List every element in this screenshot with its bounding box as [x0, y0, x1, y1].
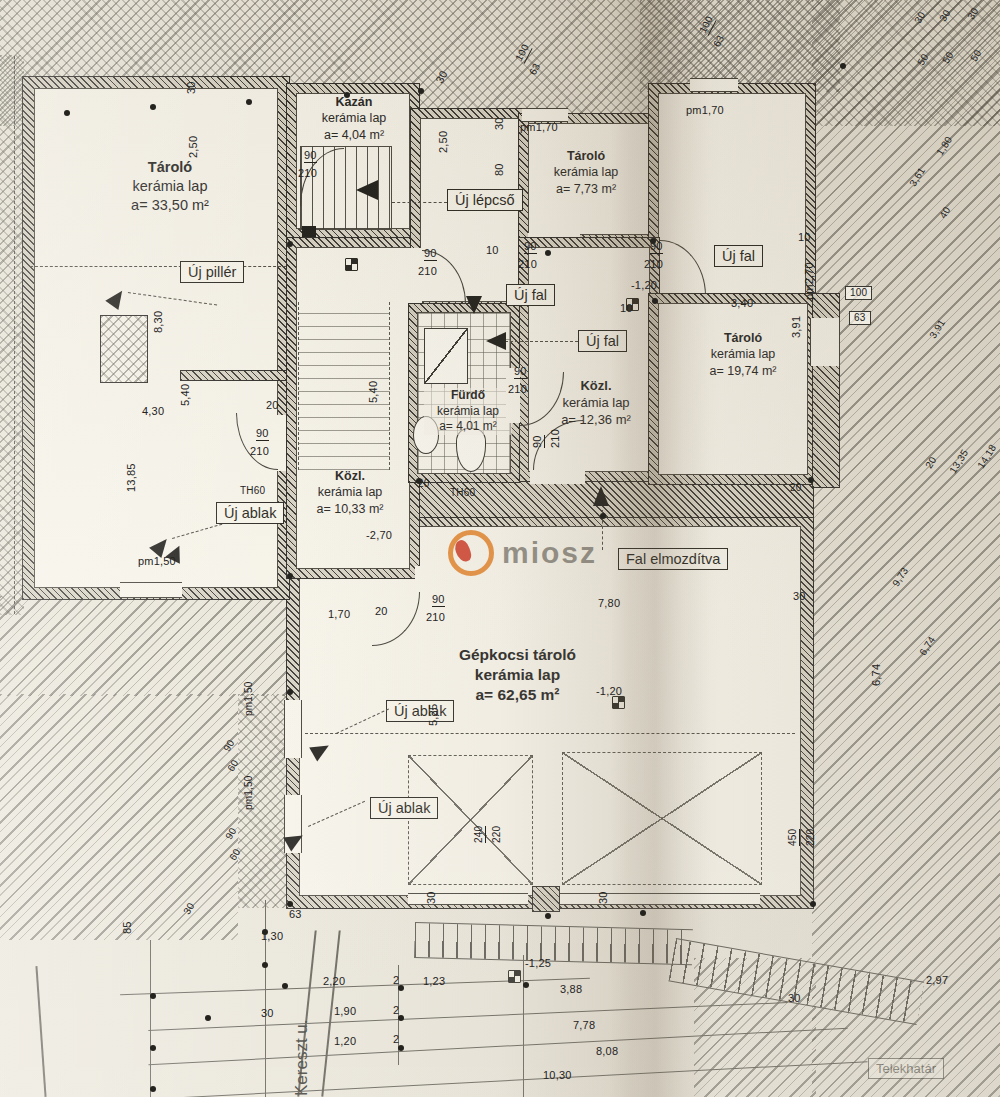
stair-direction-arrow [356, 180, 378, 200]
dimension-label: -1,20 [596, 686, 622, 697]
dimension-label: 30 [788, 993, 801, 1004]
survey-dot [418, 88, 424, 94]
dimension-label: -1,25 [525, 958, 551, 969]
dimension-label: 1,70 [328, 609, 350, 620]
dimension-label: 2,50 [188, 136, 199, 158]
tarolo-c-window [810, 318, 840, 366]
dimension-label: 8,08 [596, 1046, 618, 1057]
survey-dot [287, 689, 293, 695]
dimension-label: 20 [790, 483, 802, 493]
dimension-label: 3,40 [731, 298, 753, 309]
dimension-label: 90 [432, 594, 445, 607]
ground-hatch-left-strip [0, 55, 24, 615]
tarolo-a-pillar [100, 315, 148, 383]
watermark-logo-icon [448, 530, 494, 576]
dimension-label: 30 [426, 891, 437, 904]
dimension-label: 450 [788, 829, 800, 846]
callout-uj-piller: Új pillér [180, 261, 244, 283]
dimension-label: -2,70 [366, 530, 392, 541]
tarolo-a-window [120, 582, 182, 598]
ground-hatch-right-band [812, 0, 1000, 1097]
street-name-label: Kereszt u. [292, 1000, 312, 1096]
dimension-label: 30 [186, 81, 197, 94]
dimension-label: TH60 [450, 488, 475, 498]
survey-dot [205, 1015, 211, 1021]
dimension-label: 5,40 [368, 381, 379, 403]
survey-dot [808, 477, 814, 483]
survey-dot [150, 1045, 156, 1051]
survey-dot [545, 250, 551, 256]
survey-dot [640, 910, 646, 916]
leader-uj-lepcso [392, 202, 447, 203]
callout-uj-ablak-2: Új ablak [386, 700, 454, 722]
survey-dot [416, 478, 422, 484]
level-marker-4 [508, 970, 521, 983]
dimension-label: 210 [508, 384, 527, 395]
callout-uj-lepcso: Új lépcső [447, 189, 523, 211]
survey-dot [150, 1086, 156, 1092]
dimension-label: pm1,70 [520, 122, 558, 133]
callout-uj-ablak-1: Új ablak [216, 502, 284, 524]
dimension-label: 5,40 [180, 384, 191, 406]
dimension-label: 1,20 [334, 1036, 356, 1047]
dimension-label: 210 [418, 266, 437, 277]
garage-centerline [305, 733, 795, 734]
garage-door-opening-2 [560, 893, 760, 905]
dimension-label: 210 [298, 168, 317, 179]
survey-dot [262, 962, 268, 968]
room-label-tarolo-c: Tároló kerámia lap a= 19,74 m² [686, 330, 800, 379]
callout-uj-fal-2: Új fal [578, 330, 627, 352]
dimension-label: 220 [806, 829, 816, 846]
arrow-fal-elmozditva [593, 486, 609, 506]
survey-dot [840, 63, 846, 69]
tarolo-b-window [522, 108, 568, 122]
arrow-uj-fal-2 [486, 332, 506, 350]
survey-dot [150, 993, 156, 999]
dimension-label: 8,30 [153, 311, 164, 333]
dimension-label: 7,80 [598, 598, 620, 609]
dimension-label: 2,97 [926, 975, 948, 986]
callout-fal-elmozditva: Fal elmozdítva [618, 548, 728, 570]
dimension-label: 30 [261, 1008, 274, 1019]
room-label-tarolo-a: Tároló kerámia lap a= 33,50 m² [95, 158, 245, 215]
ground-hatch-left-bottom-b [0, 694, 238, 940]
dimension-label: TH60 [240, 486, 265, 496]
survey-dot [398, 1015, 404, 1021]
dimension-label: 3,88 [560, 984, 582, 995]
right-top-window [690, 78, 738, 92]
dimension-label: 90 [532, 435, 545, 448]
survey-dot [810, 901, 816, 907]
dimension-label: 6,74 [871, 664, 882, 686]
survey-dot [650, 238, 656, 244]
dimension-label: 13,85 [126, 463, 137, 492]
dimension-label: 30 [793, 591, 806, 602]
kozl-b-door-gap [530, 470, 585, 484]
shower-tray [424, 328, 468, 384]
arrow-uj-fal-1 [466, 296, 482, 314]
tarolo-a-wall-stub [180, 370, 290, 381]
dimension-label: 63 [289, 909, 302, 920]
survey-dot [600, 513, 606, 519]
driveway-strip-1 [414, 922, 693, 965]
dimension-label: 210 [426, 612, 445, 623]
watermark: miosz [448, 530, 597, 576]
dimension-label: 90 [524, 241, 537, 254]
dimension-label: pm1,50 [244, 681, 254, 716]
level-marker-3 [612, 696, 625, 709]
dimension-label: 10 [620, 303, 633, 314]
garage-window-1 [284, 700, 302, 758]
tarolo-a-centerline [30, 266, 286, 267]
dimension-label: 90 [424, 248, 437, 261]
chain-vertical-1 [150, 940, 151, 1097]
survey-dot [652, 298, 658, 304]
dimension-label: -1,20 [631, 280, 657, 291]
survey-dot [287, 241, 293, 247]
survey-dot [150, 104, 156, 110]
dimension-label: 210 [518, 259, 537, 270]
dimension-label: 2 [393, 975, 399, 986]
dimension-label: 4,30 [142, 406, 164, 417]
dimension-label: 220 [492, 826, 502, 843]
dimension-label: 210 [250, 446, 269, 457]
dimension-label: 30 [494, 117, 505, 130]
dimension-label: 1,23 [423, 976, 445, 987]
survey-dot [398, 985, 404, 991]
dimension-label: 10 [798, 232, 811, 243]
dimension-label: 2,50 [438, 131, 449, 153]
dimension-label: 10,30 [543, 1070, 572, 1081]
room-tarolo-c-floor [658, 303, 808, 475]
room-label-furdo: Fürdő kerámia lap a= 4,01 m² [424, 388, 512, 435]
dimension-label: 63 [849, 311, 871, 325]
dimension-label: pm1,50 [138, 556, 176, 567]
floor-plan-canvas: Tároló kerámia lap a= 33,50 m² Kazán ker… [0, 0, 1000, 1097]
property-line-left [14, 56, 16, 614]
garage-skylight-2 [562, 752, 762, 885]
dimension-label: 2 [393, 1034, 399, 1045]
dimension-label: 5,25 [428, 704, 439, 726]
dimension-label: 20 [375, 606, 388, 617]
dimension-label: 30 [598, 891, 609, 904]
survey-dot [545, 913, 551, 919]
survey-dot [287, 901, 293, 907]
dimension-label: pm1,70 [686, 105, 724, 116]
callout-uj-fal-3: Új fal [714, 245, 763, 267]
dimension-label: 210 [644, 259, 663, 270]
dimension-label: 80 [494, 163, 505, 176]
survey-dot [246, 99, 252, 105]
room-label-garazs: Gépkocsi tároló kerámia lap a= 62,65 m² [420, 645, 615, 705]
garage-door-pillar [532, 886, 560, 912]
chain-vertical-4 [523, 955, 524, 1097]
room-label-tarolo-b: Tároló kerámia lap a= 7,73 m² [525, 148, 647, 197]
leader-uj-fal-2 [500, 341, 578, 342]
dimension-label: 210 [550, 429, 561, 448]
watermark-text: miosz [502, 536, 597, 570]
callout-uj-fal-1: Új fal [506, 284, 555, 306]
chain-line-2 [148, 1002, 787, 1031]
level-marker-1 [345, 258, 358, 271]
dimension-label: pm2,70 [804, 262, 815, 300]
dimension-label: pm1,50 [244, 775, 254, 810]
dimension-label: 85 [122, 921, 133, 934]
dimension-label: 7,78 [573, 1020, 595, 1031]
dimension-label: 90 [514, 366, 527, 379]
dimension-label: 100 [845, 286, 872, 300]
dimension-label: 3,91 [791, 316, 802, 338]
survey-dot [344, 92, 350, 98]
dimension-label: 1,90 [334, 1006, 356, 1017]
dimension-label: 90 [304, 150, 317, 163]
dimension-label: 20 [266, 400, 279, 411]
survey-dot [282, 983, 288, 989]
callout-uj-ablak-3: Új ablak [370, 797, 438, 819]
dimension-label: 90 [256, 428, 269, 441]
room-label-kazan: Kazán kerámia lap a= 4,04 m² [298, 94, 410, 143]
survey-dot [287, 573, 293, 579]
dimension-label: 240 [474, 826, 486, 843]
room-label-kozl-b: Közl. kerámia lap a= 12,36 m² [540, 378, 652, 429]
dimension-label: 10 [486, 245, 499, 256]
callout-telekhatar: Telekhatár [868, 1058, 944, 1079]
survey-dot [262, 929, 268, 935]
survey-dot [64, 110, 70, 116]
dimension-label: 2 [393, 1005, 399, 1016]
survey-dot [523, 982, 529, 988]
garage-skylight-1 [408, 755, 533, 885]
ground-hatch-top-right-wedge [640, 0, 840, 92]
plot-edge-left [35, 966, 46, 1097]
room-label-kozl-a: Közl. kerámia lap a= 10,33 m² [296, 468, 404, 517]
survey-dot [398, 1045, 404, 1051]
dimension-label: 2,20 [323, 976, 345, 987]
